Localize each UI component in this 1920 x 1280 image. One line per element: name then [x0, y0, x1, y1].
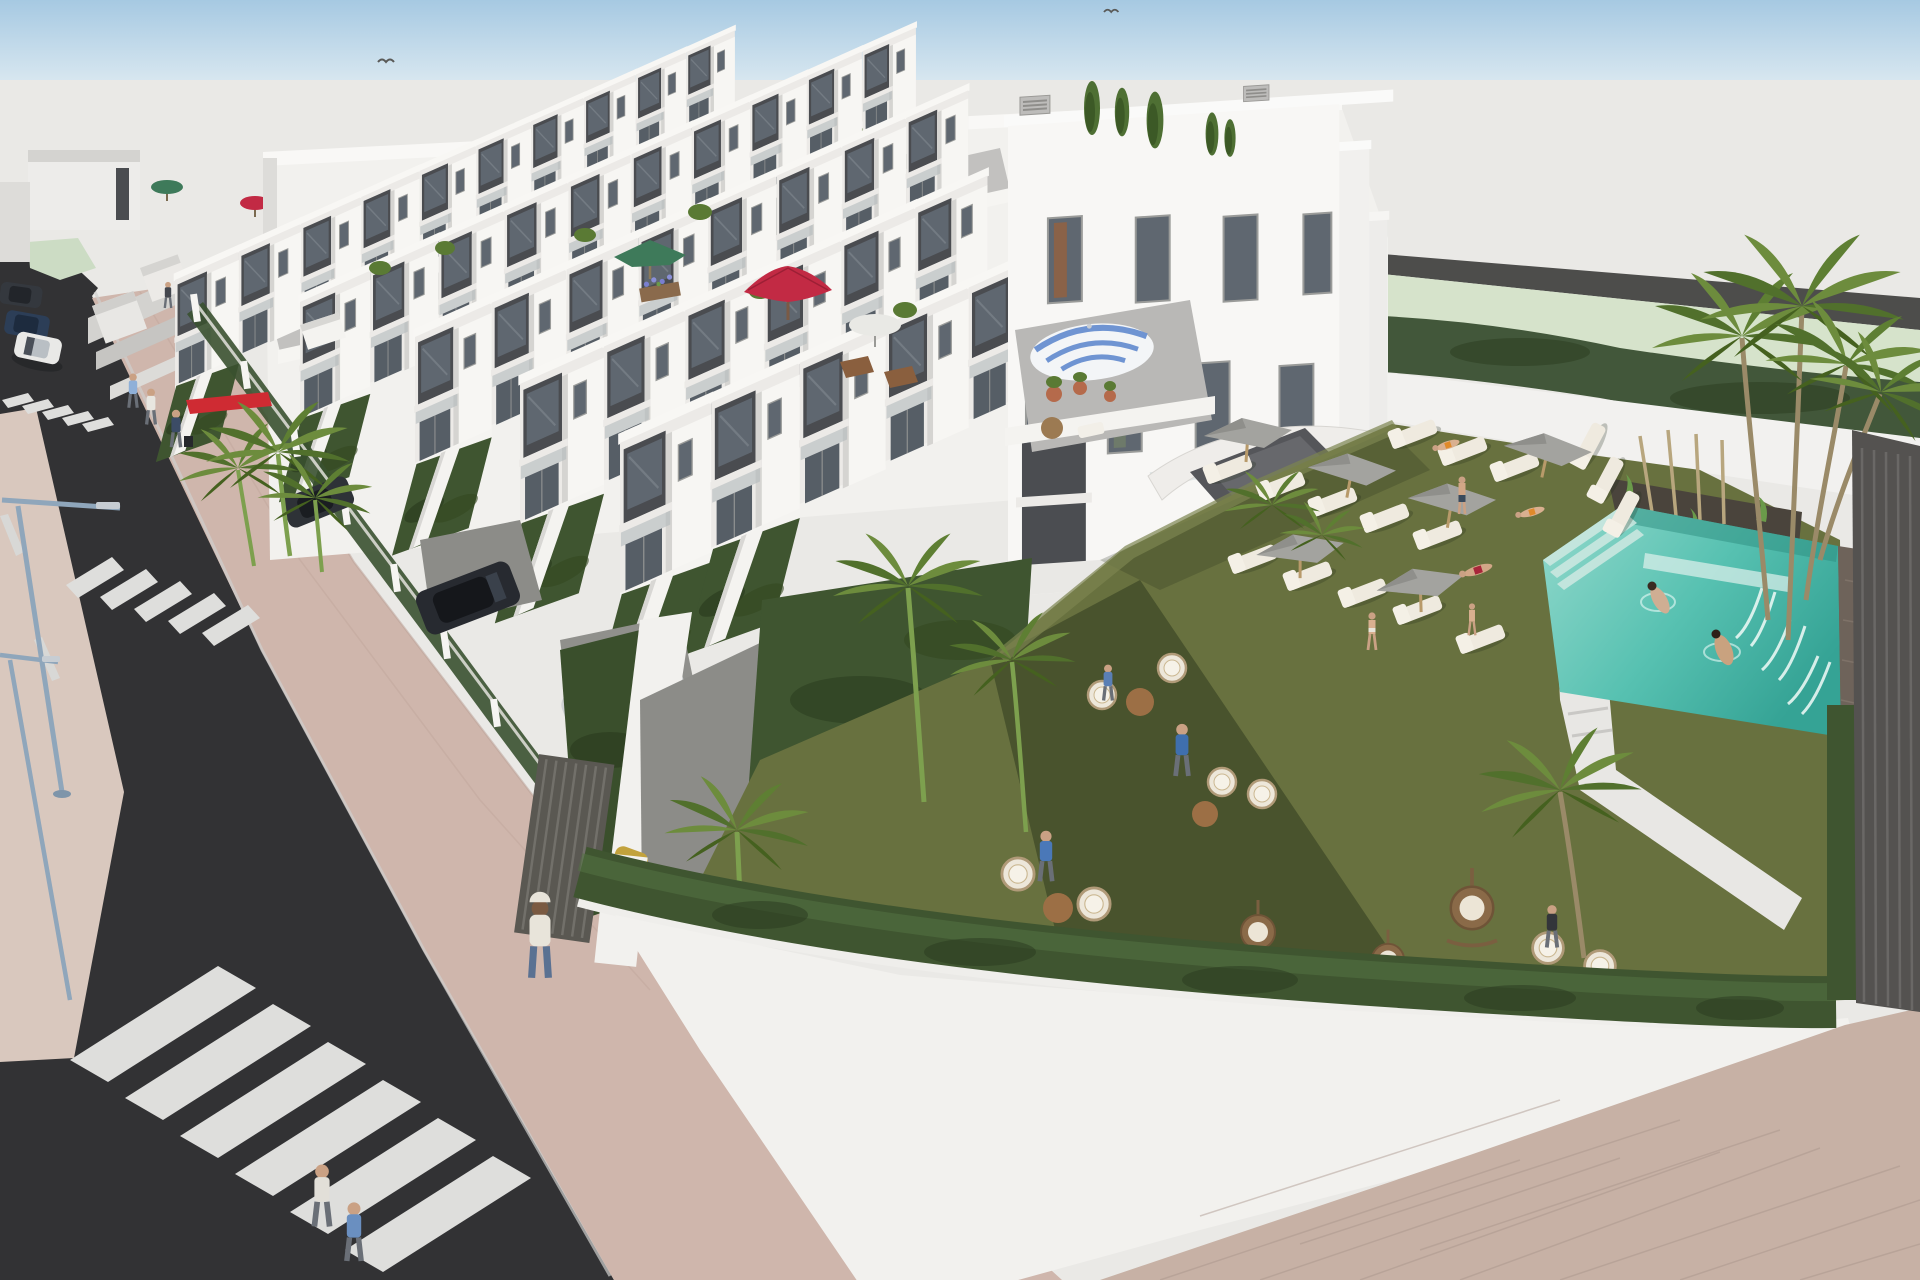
render-viewport [0, 0, 1920, 1280]
scene-canvas [0, 0, 1920, 1280]
stump-table [1041, 417, 1063, 439]
wicker-chair [1248, 780, 1276, 808]
hedge-texture [1450, 338, 1590, 366]
rattan-table [1043, 893, 1073, 923]
sky [0, 0, 1920, 82]
rattan-table [1192, 801, 1218, 827]
wicker-chair [1158, 654, 1186, 682]
wicker-chair [1078, 888, 1110, 920]
wicker-chair [1002, 858, 1034, 890]
wicker-chair [1208, 768, 1236, 796]
rattan-table [1126, 688, 1154, 716]
hedge-texture [1670, 382, 1850, 414]
